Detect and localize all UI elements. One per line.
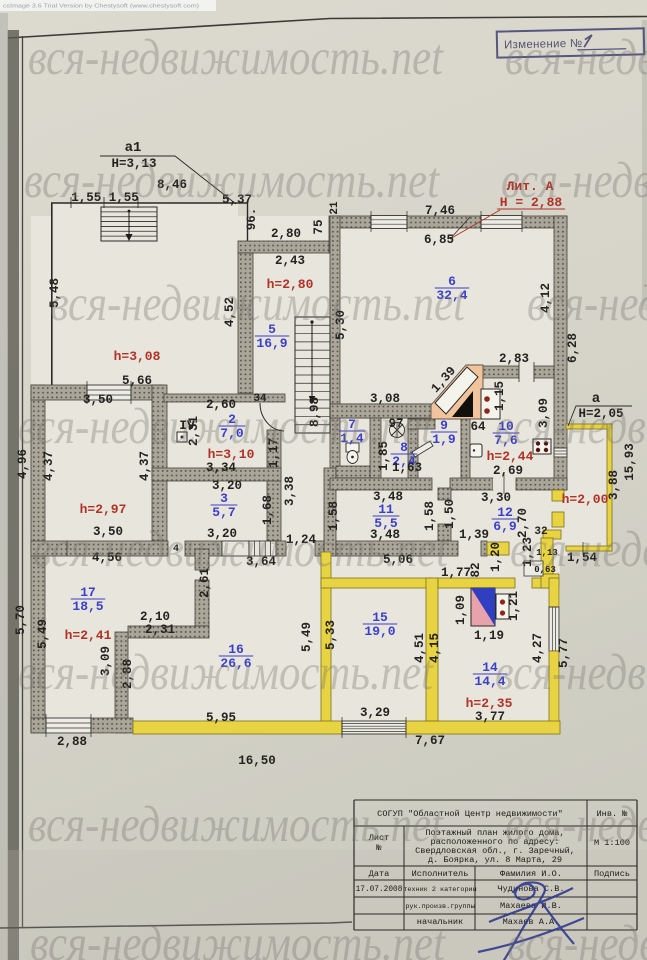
svg-text:82: 82: [469, 562, 483, 577]
svg-text:h=2,00: h=2,00: [562, 492, 609, 507]
svg-text:9: 9: [440, 418, 448, 433]
svg-text:вся-недвижимость.net: вся-недвижимость.net: [28, 30, 445, 86]
svg-text:6,85: 6,85: [424, 233, 454, 247]
svg-text:11: 11: [378, 502, 394, 517]
svg-text:csImage 3.6 Trial Version by C: csImage 3.6 Trial Version by Chestysoft …: [3, 4, 199, 10]
svg-text:5,7: 5,7: [212, 505, 235, 520]
svg-text:h=2,41: h=2,41: [65, 628, 112, 643]
svg-text:17.07.2008: 17.07.2008: [356, 886, 403, 894]
svg-text:5,95: 5,95: [206, 711, 236, 725]
svg-text:5,66: 5,66: [122, 374, 152, 388]
svg-text:вся-недвижимость.net: вся-недвижимость.net: [18, 645, 435, 701]
svg-text:16,50: 16,50: [238, 754, 276, 768]
svg-text:вся-недвижимость.net: вся-недвижимость.net: [50, 276, 467, 332]
svg-text:вся-недвижимость.net: вся-недвижимость.net: [24, 153, 441, 209]
svg-text:15: 15: [372, 610, 388, 625]
svg-text:7,67: 7,67: [415, 734, 445, 748]
svg-text:75: 75: [312, 219, 326, 234]
svg-text:рук.произв.группы: рук.произв.группы: [405, 903, 474, 911]
svg-text:вся-недвижимость.net: вся-недвижимость.net: [527, 276, 647, 332]
svg-text:96.: 96.: [245, 208, 259, 231]
svg-text:3,30: 3,30: [481, 491, 511, 505]
svg-text:вся-недвижимость.net: вся-недвижимость.net: [510, 522, 647, 578]
svg-text:h=2,97: h=2,97: [80, 502, 127, 517]
svg-text:64: 64: [470, 420, 486, 434]
svg-text:4,37: 4,37: [42, 451, 56, 481]
svg-text:техник 2 категории: техник 2 категории: [403, 886, 476, 894]
svg-text:1,19: 1,19: [474, 629, 504, 643]
svg-text:16,9: 16,9: [256, 336, 287, 351]
svg-text:вся-недвижимость.net: вся-недвижимость.net: [495, 399, 647, 455]
svg-text:2,69: 2,69: [493, 464, 523, 478]
svg-text:1,39: 1,39: [459, 528, 489, 542]
svg-text:3,34: 3,34: [206, 461, 237, 475]
svg-text:h=3,08: h=3,08: [114, 349, 161, 364]
svg-text:18,5: 18,5: [72, 599, 103, 614]
svg-text:вся-недвижимость.net: вся-недвижимость.net: [18, 399, 435, 455]
svg-text:1,21: 1,21: [507, 591, 521, 621]
svg-text:1,9: 1,9: [432, 432, 456, 447]
svg-text:2,43: 2,43: [275, 254, 305, 268]
svg-text:3: 3: [220, 491, 228, 506]
svg-text:1,20: 1,20: [489, 542, 503, 572]
svg-text:вся-недвижимость.net: вся-недвижимость.net: [30, 916, 447, 960]
svg-text:1,63: 1,63: [392, 461, 422, 475]
svg-text:Фамилия И.О.: Фамилия И.О.: [500, 869, 562, 879]
svg-text:2,83: 2,83: [499, 352, 529, 366]
svg-text:4,37: 4,37: [138, 451, 152, 481]
svg-text:вся-недвижимость.net: вся-недвижимость.net: [501, 153, 647, 209]
svg-text:2,31: 2,31: [145, 623, 175, 637]
svg-text:3,77: 3,77: [475, 710, 505, 724]
svg-text:Подпись: Подпись: [594, 869, 630, 879]
svg-text:17: 17: [80, 585, 96, 600]
svg-text:вся-недвижимость.net: вся-недвижимость.net: [505, 30, 647, 86]
svg-text:1,68: 1,68: [261, 495, 275, 525]
svg-text:д. Боярка, ул. 8 Марта, 29: д. Боярка, ул. 8 Марта, 29: [428, 855, 562, 865]
svg-text:вся-недвижимость.net: вся-недвижимость.net: [28, 797, 445, 853]
svg-text:3,38: 3,38: [283, 476, 297, 506]
svg-text:5,70: 5,70: [14, 605, 28, 635]
svg-text:Дата: Дата: [369, 869, 390, 879]
svg-text:2,80: 2,80: [271, 227, 301, 241]
svg-text:12: 12: [497, 505, 513, 520]
svg-text:1,09: 1,09: [454, 595, 468, 625]
svg-text:вся-недвижимость.net: вся-недвижимость.net: [495, 645, 647, 701]
svg-text:3,88: 3,88: [607, 470, 621, 500]
svg-text:2,88: 2,88: [57, 735, 87, 749]
svg-text:6,28: 6,28: [566, 333, 580, 363]
svg-text:Исполнитель: Исполнитель: [412, 869, 469, 879]
svg-text:вся-недвижимость.net: вся-недвижимость.net: [33, 522, 450, 578]
svg-text:3,29: 3,29: [360, 706, 390, 720]
svg-text:2,10: 2,10: [140, 610, 170, 624]
svg-text:19,0: 19,0: [364, 624, 395, 639]
svg-text:вся-недвижимость.net: вся-недвижимость.net: [505, 797, 647, 853]
svg-text:вся-недвижимость.net: вся-недвижимость.net: [507, 916, 647, 960]
